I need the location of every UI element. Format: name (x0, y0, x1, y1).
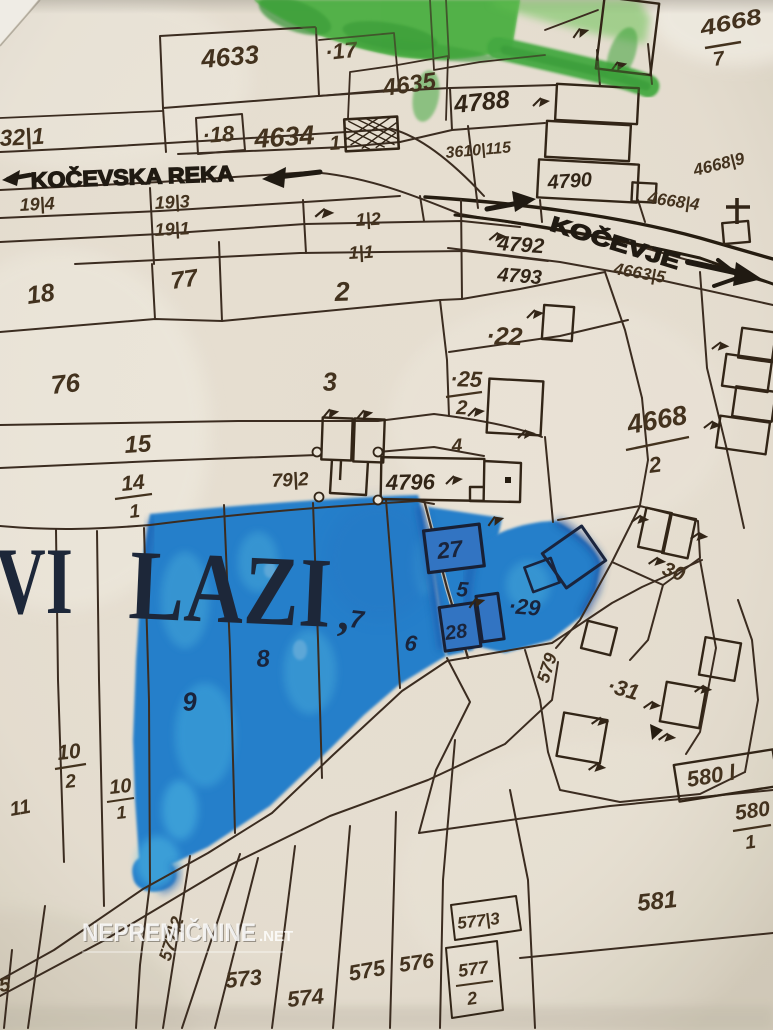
svg-text:.NET: .NET (259, 928, 293, 945)
svg-text:NEPREMIČNINE: NEPREMIČNINE (82, 917, 256, 947)
